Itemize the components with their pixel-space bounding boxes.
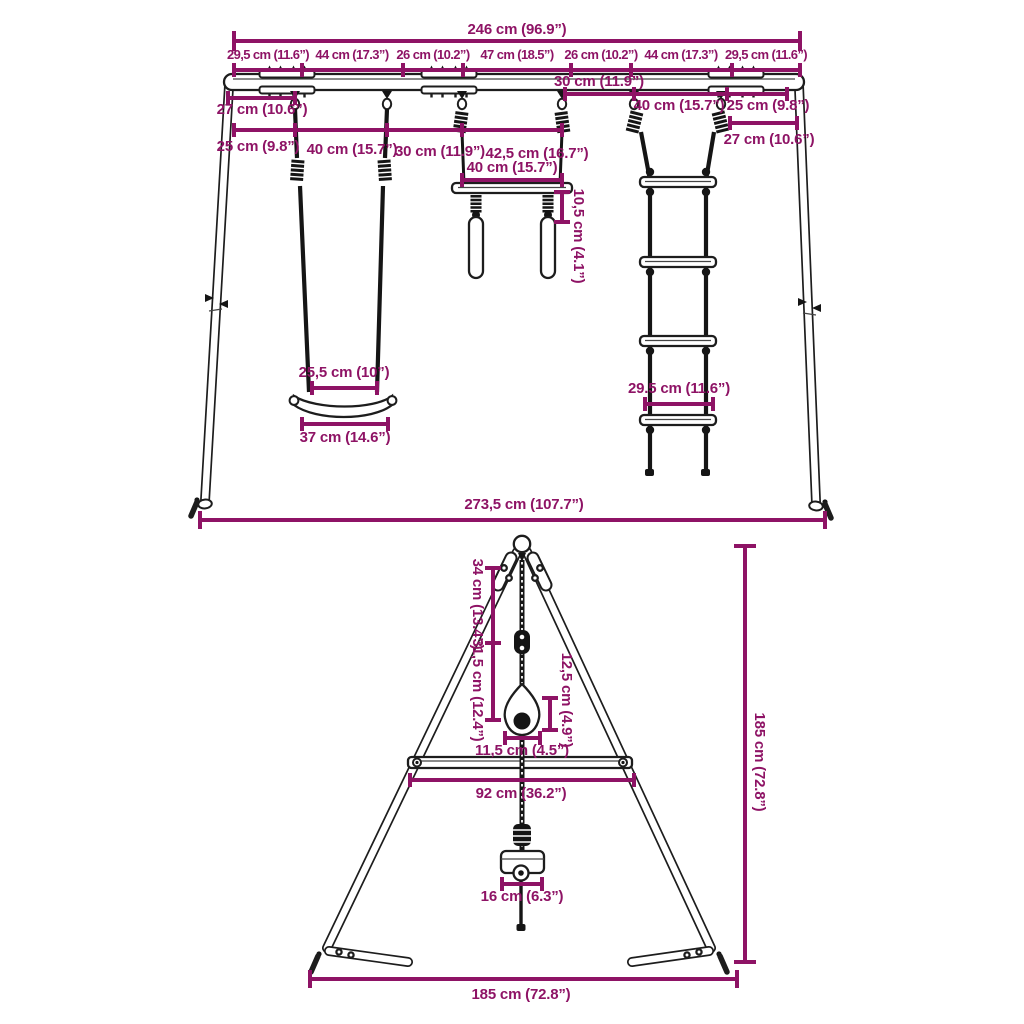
side-left-anchor [311, 951, 322, 972]
trapeze-rings [452, 91, 572, 278]
ladder-rung-2 [640, 257, 716, 276]
rope-adjuster [514, 630, 530, 654]
dim-total-bottom: 273,5 cm (107.7”) [464, 496, 583, 513]
dim-right-27: 27 cm (10.6”) [724, 131, 815, 148]
dim-height-185: 185 cm (72.8”) [751, 713, 768, 812]
dim-rope-34: 34 cm (13.4”) [469, 559, 486, 650]
dim-handle-11-5: 11,5 cm (4.5”) [475, 742, 569, 759]
beam-end-cap [514, 536, 530, 552]
dim-ladder-29-5: 29.5 cm (11.6”) [628, 380, 730, 397]
dim-rope-31-5: 31,5 cm (12.4”) [469, 639, 486, 742]
side-view: 34 cm (13.4”) 31,5 cm (12.4”) 12,5 cm (4… [310, 536, 768, 1003]
dim-right-25: 25 cm (9.8”) [727, 97, 810, 114]
side-right-anchor [716, 951, 727, 972]
dim-seg-6: 44 cm (17.3”) [644, 47, 717, 62]
ladder-rung-3 [640, 336, 716, 355]
swing-seat [294, 396, 392, 417]
dim-row2-40: 40 cm (15.7”) [307, 141, 398, 158]
side-seat [501, 851, 544, 881]
dim-trapeze-40: 40 cm (15.7”) [467, 159, 558, 176]
dim-row2-30: 30 cm (11.9”) [395, 143, 485, 160]
dim-trapeze-10-5: 10,5 cm (4.1”) [570, 189, 587, 284]
dim-seg-5: 26 cm (10.2”) [564, 47, 637, 62]
dim-seg-2: 44 cm (17.3”) [315, 47, 388, 62]
dim-total-top: 246 cm (96.9”) [468, 21, 567, 38]
rope-knob [514, 713, 531, 730]
rope-coil [513, 824, 531, 846]
trapeze-ring-right [541, 217, 555, 278]
dim-seat-16: 16 cm (6.3”) [481, 888, 564, 905]
trapeze-ring-left [469, 217, 483, 278]
dim-seg-7: 29,5 cm (11.6”) [725, 47, 807, 62]
dimension-diagram-page: 246 cm (96.9”) 29,5 cm (11.6”) 44 cm (17… [0, 0, 1024, 1024]
ladder-rung-4 [640, 415, 716, 434]
dim-handle-12-5: 12,5 cm (4.9”) [558, 653, 575, 748]
dim-swing-25-5: 25,5 cm (10”) [299, 364, 390, 381]
rope-ladder [626, 91, 730, 476]
dim-right-30: 30 cm (11.9”) [554, 73, 644, 90]
dim-depth-185: 185 cm (72.8”) [472, 986, 571, 1003]
front-view: 246 cm (96.9”) 29,5 cm (11.6”) 44 cm (17… [191, 21, 831, 529]
swing-set-dimension-diagram: 246 cm (96.9”) 29,5 cm (11.6”) 44 cm (17… [0, 0, 1024, 1024]
dim-seg-4: 47 cm (18.5”) [480, 47, 553, 62]
dim-crossbar-92: 92 cm (36.2”) [476, 785, 567, 802]
dim-row2-25: 25 cm (9.8”) [217, 138, 300, 155]
left-foot-cap [198, 499, 212, 509]
dim-left-27: 27 cm (10.6”) [217, 101, 308, 118]
ladder-rung-1 [640, 177, 716, 196]
right-foot-cap [809, 501, 823, 511]
dim-right-40: 40 cm (15.7”) [634, 97, 725, 114]
dim-swing-37: 37 cm (14.6”) [300, 429, 391, 446]
dim-seg-1: 29,5 cm (11.6”) [227, 47, 309, 62]
dim-seg-3: 26 cm (10.2”) [396, 47, 469, 62]
